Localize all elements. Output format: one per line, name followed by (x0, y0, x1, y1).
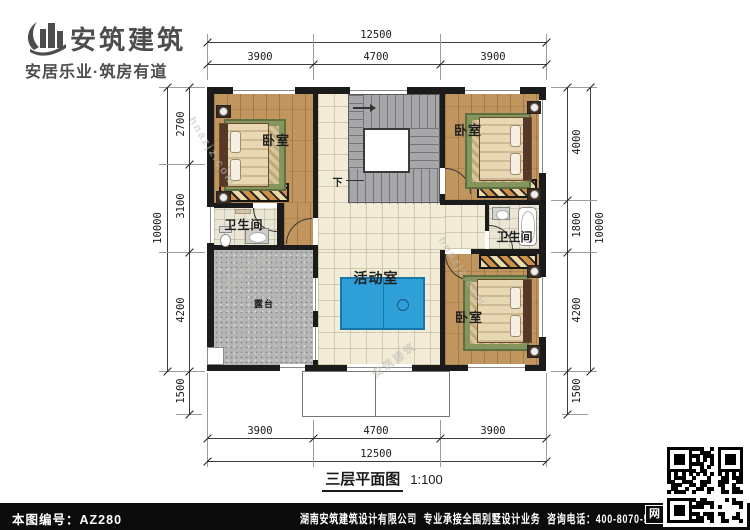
dim-left-seg-1: 2700 (175, 84, 187, 164)
dim-bottom-total: 12500 (326, 448, 426, 460)
service-text: 专业承接全国别墅设计业务 (424, 512, 541, 526)
dim-top-seg-1: 3900 (210, 51, 310, 63)
dim-left-seg-3: 4200 (175, 270, 187, 350)
floor-plan-sheet: 安筑建筑 安居乐业·筑房有道 (0, 0, 750, 530)
label-terrace: 露台 (234, 297, 294, 310)
dim-right-seg-3: 4200 (571, 270, 583, 350)
footer-company-line: 湖南安筑建筑设计有限公司 专业承接全国别墅设计业务 咨询电话：400-8070-… (300, 510, 660, 527)
label-bathroom-left: 卫生间 (215, 216, 273, 233)
brand-logo-icon (22, 16, 68, 56)
window-terrace-wall-1 (313, 278, 318, 311)
web-label-box: 网 (645, 505, 664, 524)
dim-right-total: 10000 (594, 188, 606, 268)
dim-right-seg-2: 1800 (571, 185, 583, 265)
nightstand (527, 101, 541, 114)
label-stairs-down: 下 (331, 174, 345, 189)
stair-void (363, 128, 410, 173)
window-top-2 (350, 87, 407, 94)
dim-left-total: 10000 (152, 188, 164, 268)
window-bottom-2 (347, 364, 412, 371)
hall-floor (318, 203, 445, 250)
bath-mat (235, 209, 251, 214)
drawing-caption: 三层平面图1:100 (295, 468, 470, 489)
floor-plan: 卧室 卧室 卧室 卫生间 卫生间 活动室 露台 下 (207, 87, 546, 371)
window-bottom-1 (280, 364, 305, 371)
stair-direction-arrow (370, 104, 376, 112)
dim-top-seg-3: 3900 (443, 51, 543, 63)
sink (492, 207, 510, 220)
window-top-3 (465, 87, 520, 94)
window-bottom-3 (468, 364, 525, 371)
toilet-bowl (220, 234, 231, 247)
brand-name: 安筑建筑 (70, 20, 186, 57)
corridor-right-floor (445, 205, 485, 249)
dim-bottom-seg-2: 4700 (326, 425, 426, 437)
caption-scale: 1:100 (410, 472, 443, 487)
nightstand (216, 191, 231, 204)
footer-bar: 本图编号：AZ280 湖南安筑建筑设计有限公司 专业承接全国别墅设计业务 咨询电… (0, 503, 750, 530)
window-right-bedroom-bottom (539, 277, 546, 337)
dim-right-below: 1500 (571, 351, 583, 431)
roof-outline-divider (375, 372, 376, 416)
nightstand (527, 345, 541, 358)
caption-title: 三层平面图 (322, 471, 403, 492)
dim-right-seg-1: 4000 (571, 102, 583, 182)
roof-outline (302, 371, 450, 417)
label-activity-room: 活动室 (346, 268, 406, 288)
qr-code (663, 443, 747, 527)
dim-left-seg-2: 3100 (175, 166, 187, 246)
window-terrace-wall-2 (313, 327, 318, 360)
label-bathroom-right: 卫生间 (490, 228, 539, 245)
dim-bottom-seg-1: 3900 (210, 425, 310, 437)
company-name: 湖南安筑建筑设计有限公司 (300, 512, 417, 526)
nightstand (527, 188, 541, 201)
dim-top-seg-2: 4700 (326, 51, 426, 63)
nightstand (527, 265, 541, 278)
stairwell (348, 94, 440, 203)
drawing-number: 本图编号：AZ280 (12, 509, 122, 528)
nightstand (216, 105, 231, 118)
label-bedroom-top-right: 卧室 (441, 120, 495, 139)
terrace-column (207, 347, 224, 365)
window-top-1 (233, 87, 295, 94)
label-bedroom-bottom-right: 卧室 (442, 307, 496, 326)
stairs-down-leader (346, 180, 364, 181)
window-left-bathroom (207, 207, 214, 243)
phone-text: 咨询电话：400-8070-511 (547, 512, 660, 526)
dim-top-total: 12500 (326, 29, 426, 41)
brand-tagline: 安居乐业·筑房有道 (25, 58, 167, 82)
qr-code-modules (667, 447, 743, 523)
table-chair-icon (397, 299, 409, 311)
label-bedroom-top-left: 卧室 (247, 130, 305, 149)
dim-bottom-seg-3: 3900 (443, 425, 543, 437)
dim-left-below: 1500 (175, 351, 187, 431)
stair-direction-line (353, 107, 370, 109)
